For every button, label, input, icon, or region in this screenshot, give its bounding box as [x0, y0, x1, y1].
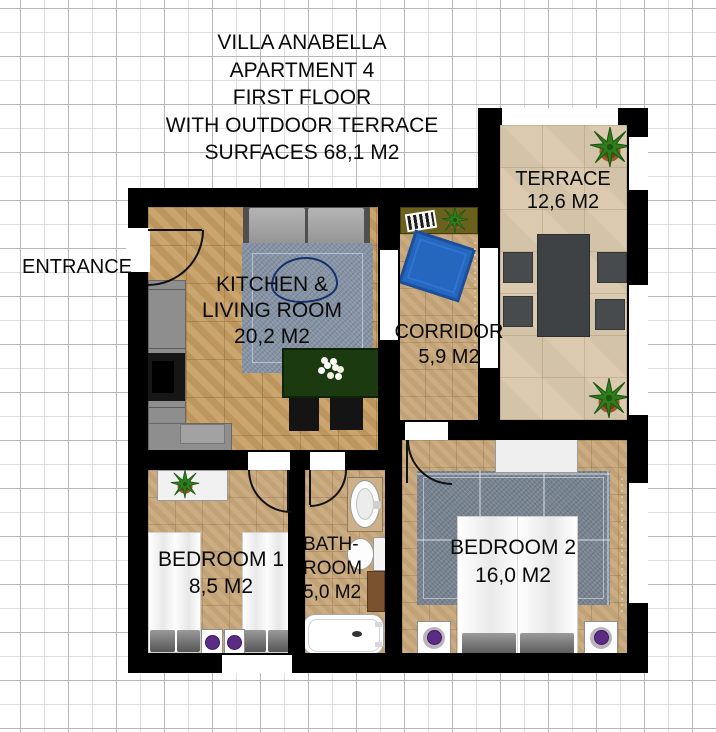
sink-basin — [350, 480, 380, 528]
bathroom-doorway — [310, 452, 345, 470]
fairy-lights — [621, 478, 623, 612]
room-area: 5,0 M2 — [303, 581, 373, 605]
faucet-icon — [375, 622, 382, 627]
room-name: BEDROOM 1 — [146, 546, 296, 573]
stove-burner — [152, 361, 174, 393]
room-area: 5,9 M2 — [394, 345, 504, 370]
plant-icon — [441, 206, 469, 234]
title-line: SURFACES 68,1 M2 — [164, 139, 440, 167]
picture-frame — [405, 210, 437, 232]
room-label-corridor: CORRIDOR 5,9 M2 — [394, 320, 504, 370]
room-label-bedroom1: BEDROOM 1 8,5 M2 — [146, 546, 296, 600]
title-line: WITH OUTDOOR TERRACE — [164, 112, 440, 140]
bedroom2-doorway — [405, 422, 448, 440]
pillow — [150, 630, 175, 652]
pillow — [268, 630, 289, 652]
room-name: BEDROOM 2 — [438, 534, 588, 562]
terrace-window — [629, 137, 648, 190]
room-area: 8,5 M2 — [146, 573, 296, 600]
lamp-icon — [427, 630, 442, 645]
pillow — [244, 630, 266, 652]
terrace-chair — [595, 299, 625, 330]
door-leaf — [148, 229, 202, 231]
title-line: VILLA ANABELLA — [164, 29, 440, 57]
terrace-table — [537, 234, 590, 337]
sink-vanity — [347, 477, 383, 532]
lamp-base — [423, 627, 445, 649]
wall-segment — [128, 188, 478, 207]
room-label-bedroom2: BEDROOM 2 16,0 M2 — [438, 534, 588, 590]
bathtub-inner — [308, 619, 380, 652]
terrace-chair — [503, 252, 533, 283]
bedroom1-doorway — [248, 452, 290, 470]
title-line: FIRST FLOOR — [164, 84, 440, 112]
nightstand — [201, 629, 223, 655]
rug-border-pattern — [407, 238, 468, 293]
terrace-chair — [503, 296, 533, 327]
room-area: 20,2 M2 — [172, 324, 372, 350]
sofa-cushion — [249, 208, 305, 248]
nightstand — [417, 621, 451, 654]
plan-title: VILLA ANABELLA APARTMENT 4 FIRST FLOOR W… — [164, 29, 440, 167]
room-name: TERRACE — [508, 168, 618, 191]
title-line: APARTMENT 4 — [164, 57, 440, 85]
bathtub-drain — [352, 631, 362, 637]
faucet-icon — [375, 642, 382, 647]
plant-icon — [588, 374, 630, 422]
room-name: ROOM — [303, 557, 373, 581]
terrace-railing — [502, 108, 618, 125]
room-label-bathroom: BATH- ROOM 5,0 M2 — [303, 533, 373, 605]
dining-chair — [330, 397, 363, 430]
kitchen-sink — [180, 424, 225, 444]
sink-bowl-inner — [356, 488, 374, 520]
door-leaf — [287, 470, 289, 511]
plant-icon — [589, 122, 631, 172]
plant-graphic — [588, 374, 630, 422]
room-name: BATH- — [303, 533, 373, 557]
door-leaf — [309, 470, 311, 505]
faucet-icon — [373, 501, 381, 509]
bathtub — [303, 614, 384, 655]
room-label-kitchen-living: KITCHEN & LIVING ROOM 20,2 M2 — [172, 272, 372, 350]
lamp-icon — [594, 630, 609, 645]
door-leaf — [406, 440, 408, 483]
dining-table — [282, 348, 380, 398]
sofa-cushion — [308, 208, 364, 248]
pillow — [177, 630, 200, 652]
terrace-chair — [597, 252, 627, 283]
terrace-window — [629, 285, 648, 415]
entrance-label: ENTRANCE — [22, 256, 132, 279]
plant-graphic — [441, 206, 469, 234]
bedroom2-window — [629, 483, 648, 603]
floor-plan-canvas: VILLA ANABELLA APARTMENT 4 FIRST FLOOR W… — [0, 0, 716, 732]
room-name: LIVING ROOM — [172, 298, 372, 324]
plant-graphic — [589, 122, 631, 172]
room-area: 12,6 M2 — [508, 191, 618, 214]
lamp-icon — [205, 635, 220, 650]
lamp-base — [590, 627, 612, 649]
nightstand — [224, 629, 245, 655]
bedroom2-dresser — [495, 439, 578, 473]
bedroom1-window — [222, 655, 292, 673]
room-name: KITCHEN & — [172, 272, 372, 298]
dining-chair — [289, 397, 319, 431]
plant-graphic — [170, 469, 200, 499]
wall-segment — [385, 440, 402, 653]
room-label-terrace: TERRACE 12,6 M2 — [508, 168, 618, 214]
flower-bouquet — [324, 362, 331, 369]
room-name: CORRIDOR — [394, 320, 504, 345]
nightstand — [584, 621, 618, 654]
plant-icon — [170, 469, 200, 499]
lamp-icon — [227, 635, 242, 650]
stove-cooktop — [148, 353, 185, 401]
room-area: 16,0 M2 — [438, 562, 588, 590]
wall-segment — [128, 653, 648, 673]
